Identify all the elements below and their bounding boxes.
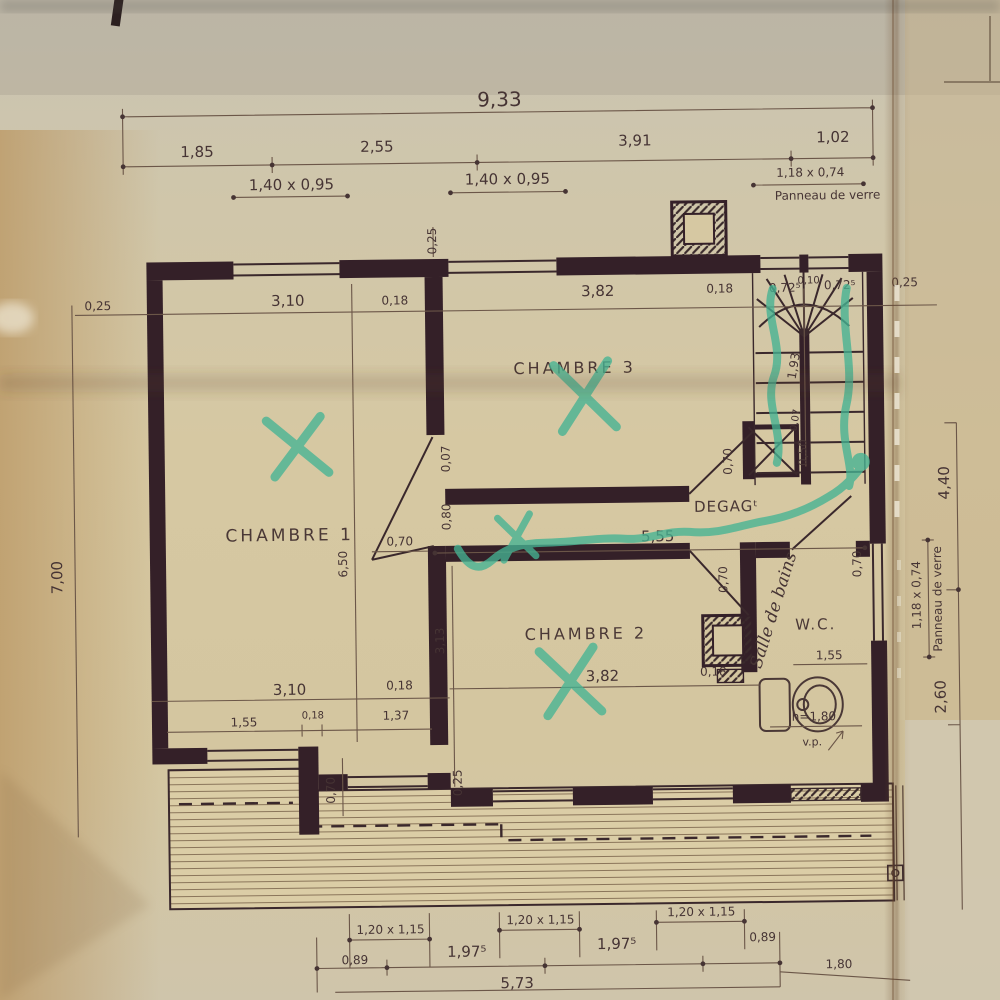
chimney-top [672, 201, 727, 256]
dim-sub-2: 0,18 [302, 710, 324, 721]
dim-walltop-5: 0,18 [706, 281, 733, 295]
dim-duct: 0,50 [796, 439, 810, 466]
dim-mid-2: 0,18 [386, 678, 413, 692]
dim-top-seg1: 1,85 [180, 143, 214, 161]
dim-window1: 1,40 x 0,95 [249, 175, 334, 194]
room-wc: W.C. [795, 615, 836, 634]
dim-interior-wall-top: 0,25 [425, 228, 439, 255]
dim-window2: 1,40 x 0,95 [465, 170, 550, 189]
room-chambre2: CHAMBRE 2 [525, 623, 648, 643]
dim-walltop-7: 0,10 [797, 275, 819, 286]
dim-toilet-height: h=1,80 [792, 709, 837, 724]
dim-glass-size-right: 1,18 x 0,74 [909, 561, 924, 629]
dim-top-seg4: 1,02 [816, 128, 850, 146]
dim-corridor-wall: 0,07 [439, 445, 453, 472]
dim-walltop-1: 0,25 [84, 299, 111, 313]
floorplan-photo: 9,33 1,85 2,55 3,91 1,02 1,40 x 0,95 1,4… [0, 0, 1000, 1000]
dim-bseg-5: 1,80 [826, 957, 853, 971]
label-glass-name-top: Panneau de verre [775, 188, 881, 203]
dim-bwin-1: 1,20 x 1,15 [356, 922, 424, 937]
dim-wc-width: 1,55 [816, 648, 843, 662]
room-chambre1: CHAMBRE 1 [225, 525, 354, 547]
dim-bwin-3: 1,20 x 1,15 [667, 904, 735, 919]
dim-corridor-door: 0,80 [439, 503, 453, 530]
dim-top-seg2: 2,55 [360, 138, 394, 156]
dim-bottom-left-wall: 0,25 [451, 769, 465, 796]
room-degagement: DEGAGᵗ [694, 497, 759, 516]
dim-bottom-total: 5,73 [500, 974, 534, 992]
dim-sub-1: 1,55 [231, 715, 258, 729]
dim-top-seg3: 3,91 [618, 131, 652, 149]
dim-door-chambre1: 0,70 [386, 534, 413, 548]
dim-right-lower: 2,60 [932, 680, 950, 714]
dim-bseg-1: 0,89 [341, 953, 368, 967]
dim-walltop-3: 0,18 [381, 293, 408, 307]
dim-right-upper: 4,40 [935, 466, 953, 500]
dim-door-chambre2: 0,70 [716, 566, 730, 593]
dim-mid-1: 3,10 [273, 681, 307, 699]
dim-bseg-2: 1,97⁵ [447, 942, 487, 960]
label-vp: v.p. [802, 735, 822, 748]
dim-mid-3: 3,82 [586, 667, 620, 685]
dim-walltop-4: 3,82 [581, 282, 615, 300]
dim-sub-3: 1,37 [382, 708, 409, 722]
dim-chambre2-depth: 3,13 [433, 628, 447, 655]
dim-bseg-3: 1,97⁵ [597, 935, 637, 953]
dim-walltop-8: 0,72⁵ [824, 278, 856, 292]
door-sill-hatch [791, 788, 861, 801]
dim-door-step: 0,70 [324, 777, 338, 804]
label-glass-name-right: Panneau de verre [930, 546, 945, 652]
dim-bwin-2: 1,20 x 1,15 [506, 912, 574, 927]
dim-chambre1-depth: 6,50 [336, 551, 350, 578]
dim-top-total: 9,33 [477, 87, 522, 112]
dim-door-chambre3: 0,70 [721, 448, 735, 475]
dim-walltop-2: 3,10 [271, 292, 305, 310]
dim-mid-4: 0,18 [700, 664, 727, 678]
dim-bseg-4: 0,89 [749, 930, 776, 944]
dim-door-bathroom: 0,70 [850, 550, 864, 577]
dim-glass-size-top: 1,18 x 0,74 [776, 165, 844, 180]
dim-left-height: 7,00 [48, 561, 66, 595]
